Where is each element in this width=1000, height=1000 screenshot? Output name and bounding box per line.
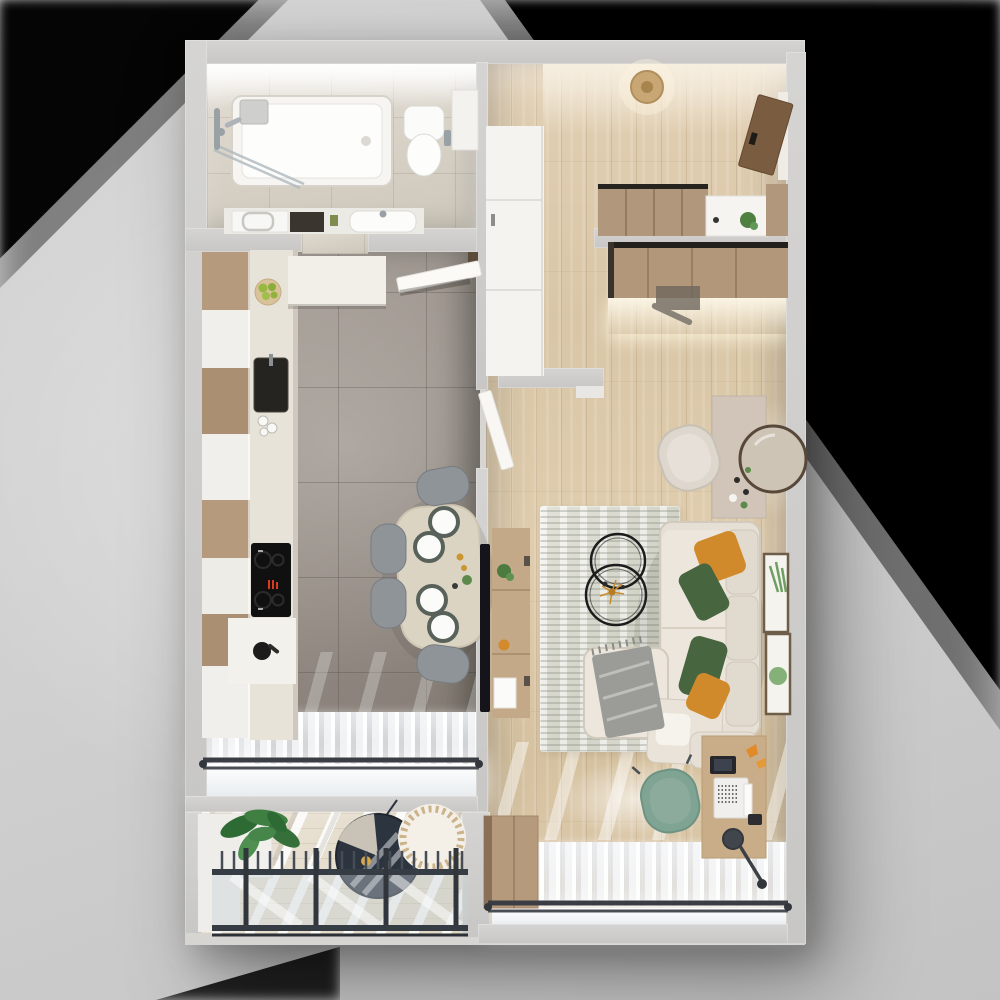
fruit	[271, 292, 278, 299]
candlestick	[461, 565, 467, 571]
dinner-plate	[418, 586, 446, 614]
cabinet-wood-block	[202, 368, 252, 434]
balcony-furniture	[198, 800, 468, 935]
rod-cap	[199, 760, 207, 768]
sideboard-handle	[524, 556, 530, 566]
console-item	[743, 489, 749, 495]
glass	[267, 423, 277, 433]
dinner-plate	[415, 533, 443, 561]
fruit	[259, 284, 268, 293]
living-wardrobe-side	[608, 242, 614, 298]
bathtub-drain	[361, 136, 371, 146]
console-vase	[713, 217, 719, 223]
rod-cap	[784, 903, 792, 911]
hallway-furniture	[486, 59, 793, 376]
closet-handle	[491, 214, 495, 226]
kettle	[253, 642, 271, 660]
console-sprig	[745, 467, 751, 473]
console-plant-leaf	[750, 222, 758, 230]
console-item-white	[729, 494, 737, 502]
basin-faucet	[380, 211, 387, 218]
glass	[258, 416, 268, 426]
toilet-paper-holder	[444, 130, 451, 146]
sideboard-books	[494, 678, 516, 708]
candlestick	[457, 554, 464, 561]
sofa-back-cushion	[726, 662, 758, 726]
sideboard-orange-decor	[499, 640, 510, 651]
console-item	[734, 477, 740, 483]
rain-shower-head	[240, 100, 268, 124]
table-decor-dark	[452, 583, 458, 589]
kitchen-soffit	[288, 256, 386, 306]
built-in-closet	[486, 126, 544, 376]
fruit	[268, 283, 276, 291]
sofa-back-cushion	[726, 596, 758, 660]
vanity-dark-cabinet	[290, 212, 324, 232]
living-open-door	[478, 390, 514, 470]
tablet-screen	[714, 759, 732, 771]
desk-lamp-base	[757, 879, 767, 889]
sink-faucet	[269, 354, 273, 366]
sideboard-plant-leaf	[506, 573, 514, 581]
living-wardrobe-trim	[608, 242, 788, 248]
coffee-table-inner	[590, 569, 642, 621]
vanity-green-accent	[330, 215, 338, 226]
hall-wood-panel	[766, 184, 788, 236]
dinner-plate	[430, 508, 458, 536]
dining-chair	[371, 578, 406, 628]
soffit-shadow	[288, 304, 386, 309]
coffee-table-inner	[595, 538, 641, 584]
cabinet-white-block	[202, 558, 252, 614]
hall-wardrobe-trim	[598, 184, 708, 189]
gold-decor-center	[609, 589, 616, 596]
fruit	[262, 292, 270, 300]
smartphone	[748, 814, 762, 825]
fruit-bowl	[255, 279, 281, 305]
toilet-bowl	[407, 134, 441, 176]
living-tall-cabinet	[484, 816, 538, 908]
hall-wardrobe	[598, 184, 708, 236]
apartment-floorplan-render	[0, 0, 1000, 1000]
cabinet-white-block	[202, 310, 252, 368]
table-plant	[462, 575, 472, 585]
botanical-art-blob	[769, 667, 787, 685]
furniture-layer	[0, 0, 1000, 1000]
tv	[480, 544, 490, 712]
cabinet-white-block	[202, 434, 252, 500]
sideboard-handle	[524, 676, 530, 686]
rod-cap	[475, 760, 483, 768]
table-decor-dot	[603, 582, 608, 587]
railing-balusters	[222, 851, 462, 871]
dining-chair	[414, 464, 471, 508]
table-decor-dot	[621, 585, 625, 589]
desk-papers	[744, 784, 752, 816]
bathroom-shelf	[452, 90, 478, 150]
shower-mixer	[217, 128, 225, 136]
cabinet-wood-block	[202, 500, 252, 558]
cabinet-wood-block	[202, 252, 252, 310]
console-sprig	[741, 502, 748, 509]
bathroom-fixtures	[214, 90, 478, 234]
dining-chair	[371, 524, 406, 574]
tall-cabinet-side	[484, 816, 492, 908]
glass	[260, 428, 268, 436]
ceiling-light-center	[641, 81, 653, 93]
kitchen-furniture	[199, 250, 494, 768]
dinner-plate	[429, 613, 457, 641]
hall-console	[706, 196, 768, 236]
kitchen-sink	[254, 358, 288, 412]
rod-cap	[484, 903, 492, 911]
